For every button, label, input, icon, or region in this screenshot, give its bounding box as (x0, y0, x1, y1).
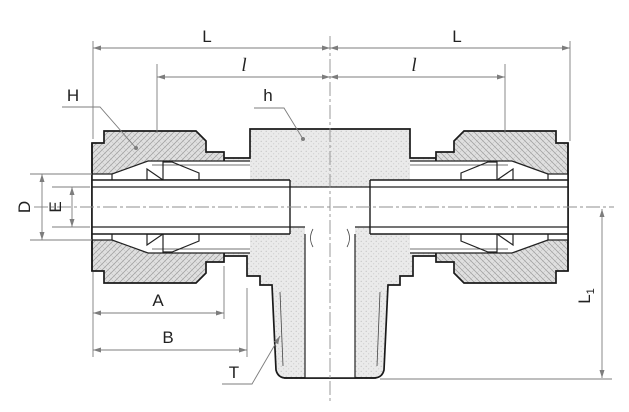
dim-L1: L1 (575, 209, 605, 378)
label-B: B (162, 328, 173, 347)
fitting-drawing-canvas: L L l l H (0, 0, 629, 412)
label-H: H (67, 86, 79, 105)
label-L-left: L (202, 27, 211, 46)
dim-l-right: l (330, 55, 505, 80)
drawing-page: L L l l H (0, 0, 629, 412)
dim-l-left: l (157, 55, 330, 80)
label-l-right: l (411, 55, 416, 76)
label-E: E (46, 201, 65, 212)
dim-T: T (222, 336, 280, 384)
dim-B: B (93, 328, 247, 353)
label-h: h (263, 86, 272, 105)
label-l-left: l (241, 55, 246, 76)
label-L1: L1 (575, 288, 597, 304)
label-A: A (152, 291, 164, 310)
dim-A: A (93, 291, 224, 316)
label-L-right: L (452, 27, 461, 46)
dim-L-right: L (330, 27, 570, 51)
label-T: T (229, 363, 239, 382)
label-D: D (15, 201, 34, 213)
dim-L-left: L (93, 27, 330, 51)
